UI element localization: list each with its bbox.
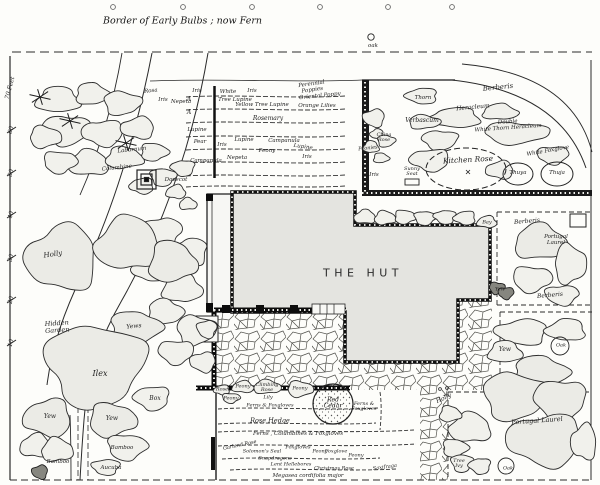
label-verbascum: Verbascum [405, 118, 439, 124]
scale-unit-label: 70 Feet [4, 76, 17, 100]
label-hidden-garden: Hidden Garden [44, 319, 69, 334]
label-yew-wall: Yew [495, 287, 505, 292]
label-orange-lilies: Orange Lilies [298, 104, 336, 110]
scale-tick-50: 50 [7, 168, 16, 177]
scale-tick-60: 60 [7, 125, 16, 134]
label-laburnum: Laburnum [117, 147, 146, 156]
label-thorn: Thorn [415, 96, 432, 102]
label-china-rose: China Rose [377, 133, 392, 144]
label-tree-ivy: Tree Ivy [453, 459, 465, 470]
label-thuja: Thuja [549, 171, 565, 177]
scale-tick-40: 40 [7, 211, 16, 220]
label-rose-bed: Rose [216, 387, 228, 392]
label-campanula-2: Campanula [190, 159, 222, 165]
label-nepeta-b: Nepeta [227, 156, 247, 162]
label-foxgloves-1: Foxgloves [285, 445, 310, 450]
label-berberis-top: Berberis [482, 83, 513, 93]
label-holly-path: Holly [435, 393, 452, 406]
label-lily: Lily [263, 395, 272, 400]
label-white: White [220, 90, 236, 96]
label-yew-2: Yew [106, 416, 118, 422]
label-lupine-1: Lupine [187, 128, 206, 134]
label-heracleum: Heracleum [456, 103, 490, 112]
label-thuya: Thuya [509, 171, 526, 177]
label-peony-5: Peony [348, 453, 363, 458]
label-iris-kitchen: Iris [369, 173, 378, 179]
label-rosemary: Rosemary [253, 116, 283, 122]
label-nepeta-a: Nepeta [171, 100, 191, 106]
label-ferns-foxgloves-2: Ferns & Foxgloves [351, 402, 376, 413]
the-hut-label: THE HUT [323, 267, 403, 280]
label-berberis-right-1: Berberis [514, 218, 541, 227]
label-bamboo-2: Bamboo [111, 446, 134, 452]
scale-tick-30: 30 [7, 253, 16, 262]
label-oak-bottom: Oak [503, 466, 513, 471]
label-pear: Pear [194, 140, 207, 146]
label-double-white-thorn: Double White Thorn Heracleum [474, 118, 542, 134]
label-peony-4: Peony [312, 449, 327, 454]
label-iris-1: Iris [192, 89, 201, 95]
label-perennial-poppies: Perennial Poppies [298, 80, 326, 95]
label-box: Box [149, 396, 160, 402]
label-holly-left: Holly [43, 250, 63, 260]
label-peony-bed: Peony [259, 149, 276, 155]
label-white-foxglove: White Foxglove [526, 145, 569, 158]
label-iris-3: Iris [217, 143, 226, 149]
scale-tick-10: 10 [7, 338, 16, 347]
label-tree-lupine: Tree Lupine [218, 98, 252, 104]
label-red-cedar: Red Cedar [324, 398, 342, 411]
label-christmas-rose: Christmas Rose [314, 466, 354, 471]
label-peony-1: Peony [235, 384, 250, 389]
label-yews: Yews [126, 323, 142, 331]
label-saxifraga: Saxifraga [373, 464, 398, 473]
label-ferns-columbines: Ferns , Columbines & Foxgloves [253, 432, 343, 438]
label-columbine: Columbine [102, 165, 133, 174]
label-rosa: Rosa [144, 88, 158, 95]
label-portugal-laurel-small: Portugal Laurel [544, 235, 568, 247]
label-aucuba: Aucuba [101, 466, 122, 472]
label-iris-2: Iris [247, 89, 256, 95]
label-foxglove-2: Foxglove [325, 449, 348, 454]
label-climbing-rose: Climbing Rose [256, 383, 279, 394]
scale-tick-20: 20 [7, 296, 16, 305]
label-yew-1: Yew [44, 414, 56, 420]
label-portugal-laurel: Portugal Laurel [511, 416, 563, 426]
label-garland-rose: Garland Rose [223, 440, 258, 452]
label-lupine-2: Lupine [234, 138, 253, 144]
label-oriental-poppy: Oriental Poppy [299, 92, 341, 102]
label-campanula-1: Campanula [268, 139, 300, 145]
label-solomons-seal: Solomon's Seal [243, 449, 282, 454]
label-oak-right: Oak [556, 343, 566, 348]
label-marker-a1: A [187, 97, 191, 103]
label-bay: Bay [482, 220, 491, 225]
label-peony-2: Peony [292, 386, 307, 391]
label-megasea: Megasea cordifolia major [272, 474, 343, 480]
label-lupine-3: Lupine [293, 144, 313, 152]
label-rose-hedge: Rose Hedge [250, 418, 290, 425]
label-sunny-seat: Sunny Seat [404, 167, 420, 178]
plan-title: Border of Early Bulbs ; now Fern [103, 16, 262, 27]
labels-layer: Border of Early Bulbs ; now Fern THE HUT… [0, 0, 600, 485]
label-iris-a: Iris [158, 98, 167, 104]
label-marker-a2: A [187, 110, 191, 116]
label-ferns-foxgloves-1: Ferns & Foxgloves [246, 403, 293, 408]
label-iris-4: Iris [302, 155, 311, 161]
label-bamboo-1: Bamboo [47, 460, 70, 466]
label-peony-3: Peony [223, 396, 238, 401]
label-snapdragons: Snapdragons [258, 456, 291, 461]
label-lent-hellebores: Lent Hellebores [271, 462, 312, 467]
garden-plan: Border of Early Bulbs ; now Fern THE HUT… [0, 0, 600, 485]
label-yew-right: Yew [499, 347, 511, 353]
label-berberis-right-2: Berberis [537, 292, 564, 301]
label-ilex: Ilex [93, 370, 108, 378]
label-peonies: Peonies [358, 145, 378, 152]
label-yellow-tree-lupine: Yellow Tree Lupine [235, 103, 289, 109]
label-kitchen-rose: Kitchen Rose [443, 155, 493, 165]
label-dovecot: Dovecot [165, 178, 188, 184]
label-oak-top: oak [368, 44, 378, 50]
